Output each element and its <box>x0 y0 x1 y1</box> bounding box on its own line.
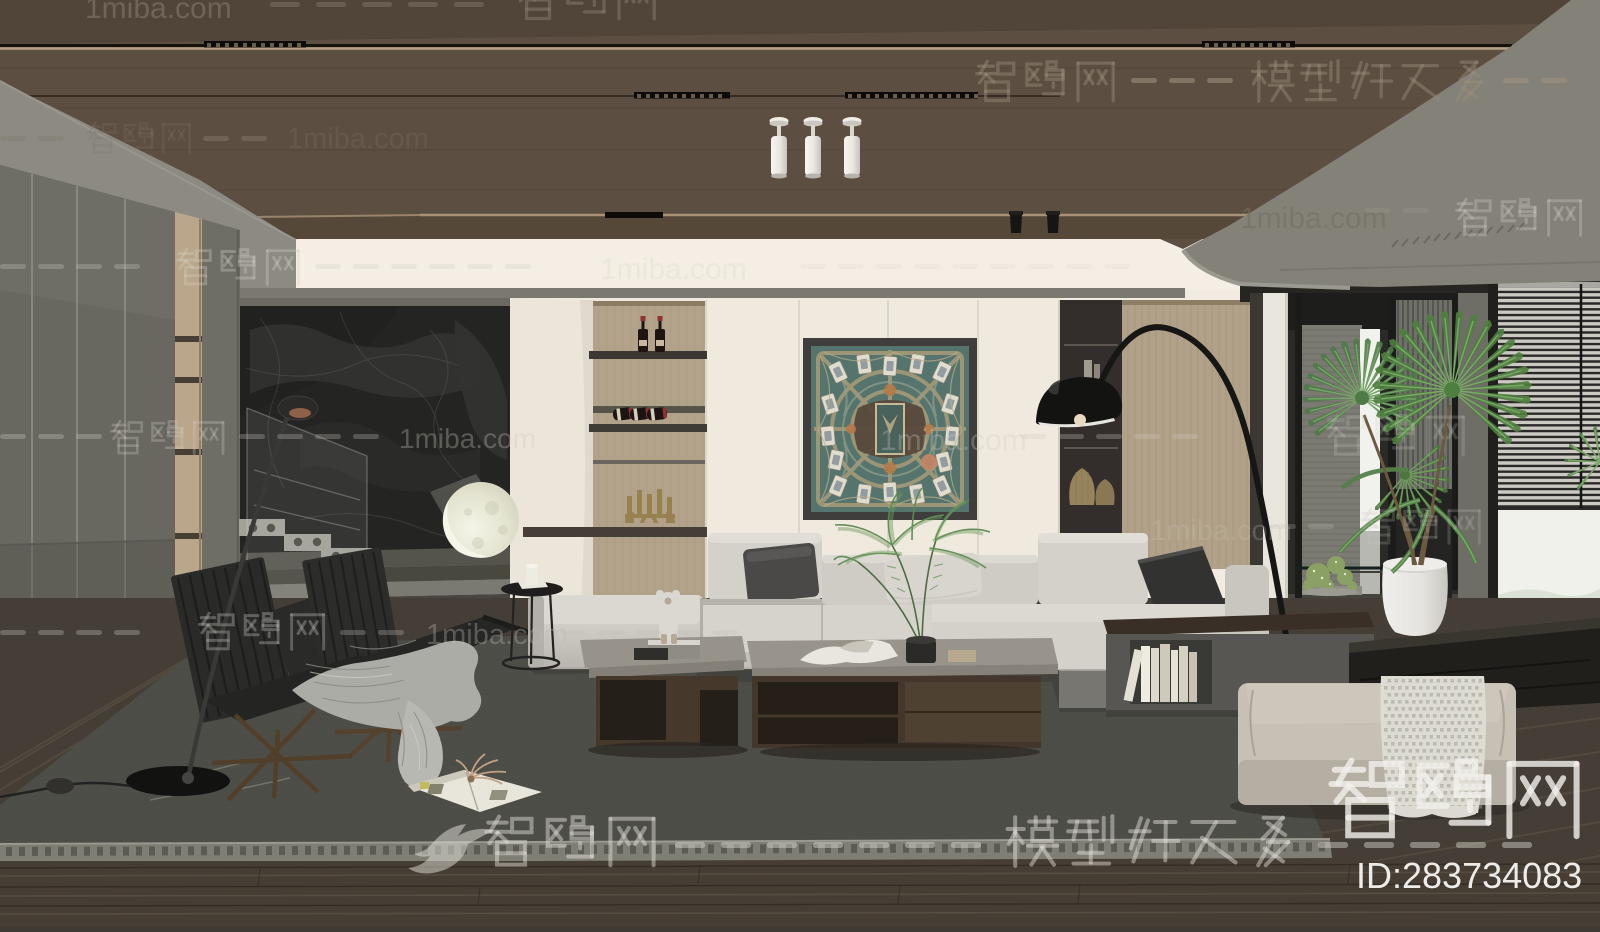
svg-text:1miba.com: 1miba.com <box>426 619 568 651</box>
svg-text:1miba.com: 1miba.com <box>85 0 232 25</box>
svg-text:1miba.com: 1miba.com <box>399 423 536 454</box>
svg-text:1miba.com: 1miba.com <box>1150 515 1292 547</box>
svg-text:1miba.com: 1miba.com <box>600 253 747 286</box>
svg-text:ID:283734083: ID:283734083 <box>1356 855 1582 896</box>
svg-text:1miba.com: 1miba.com <box>1240 202 1387 235</box>
svg-text:1miba.com: 1miba.com <box>287 123 429 155</box>
svg-text:1miba.com: 1miba.com <box>880 424 1027 457</box>
